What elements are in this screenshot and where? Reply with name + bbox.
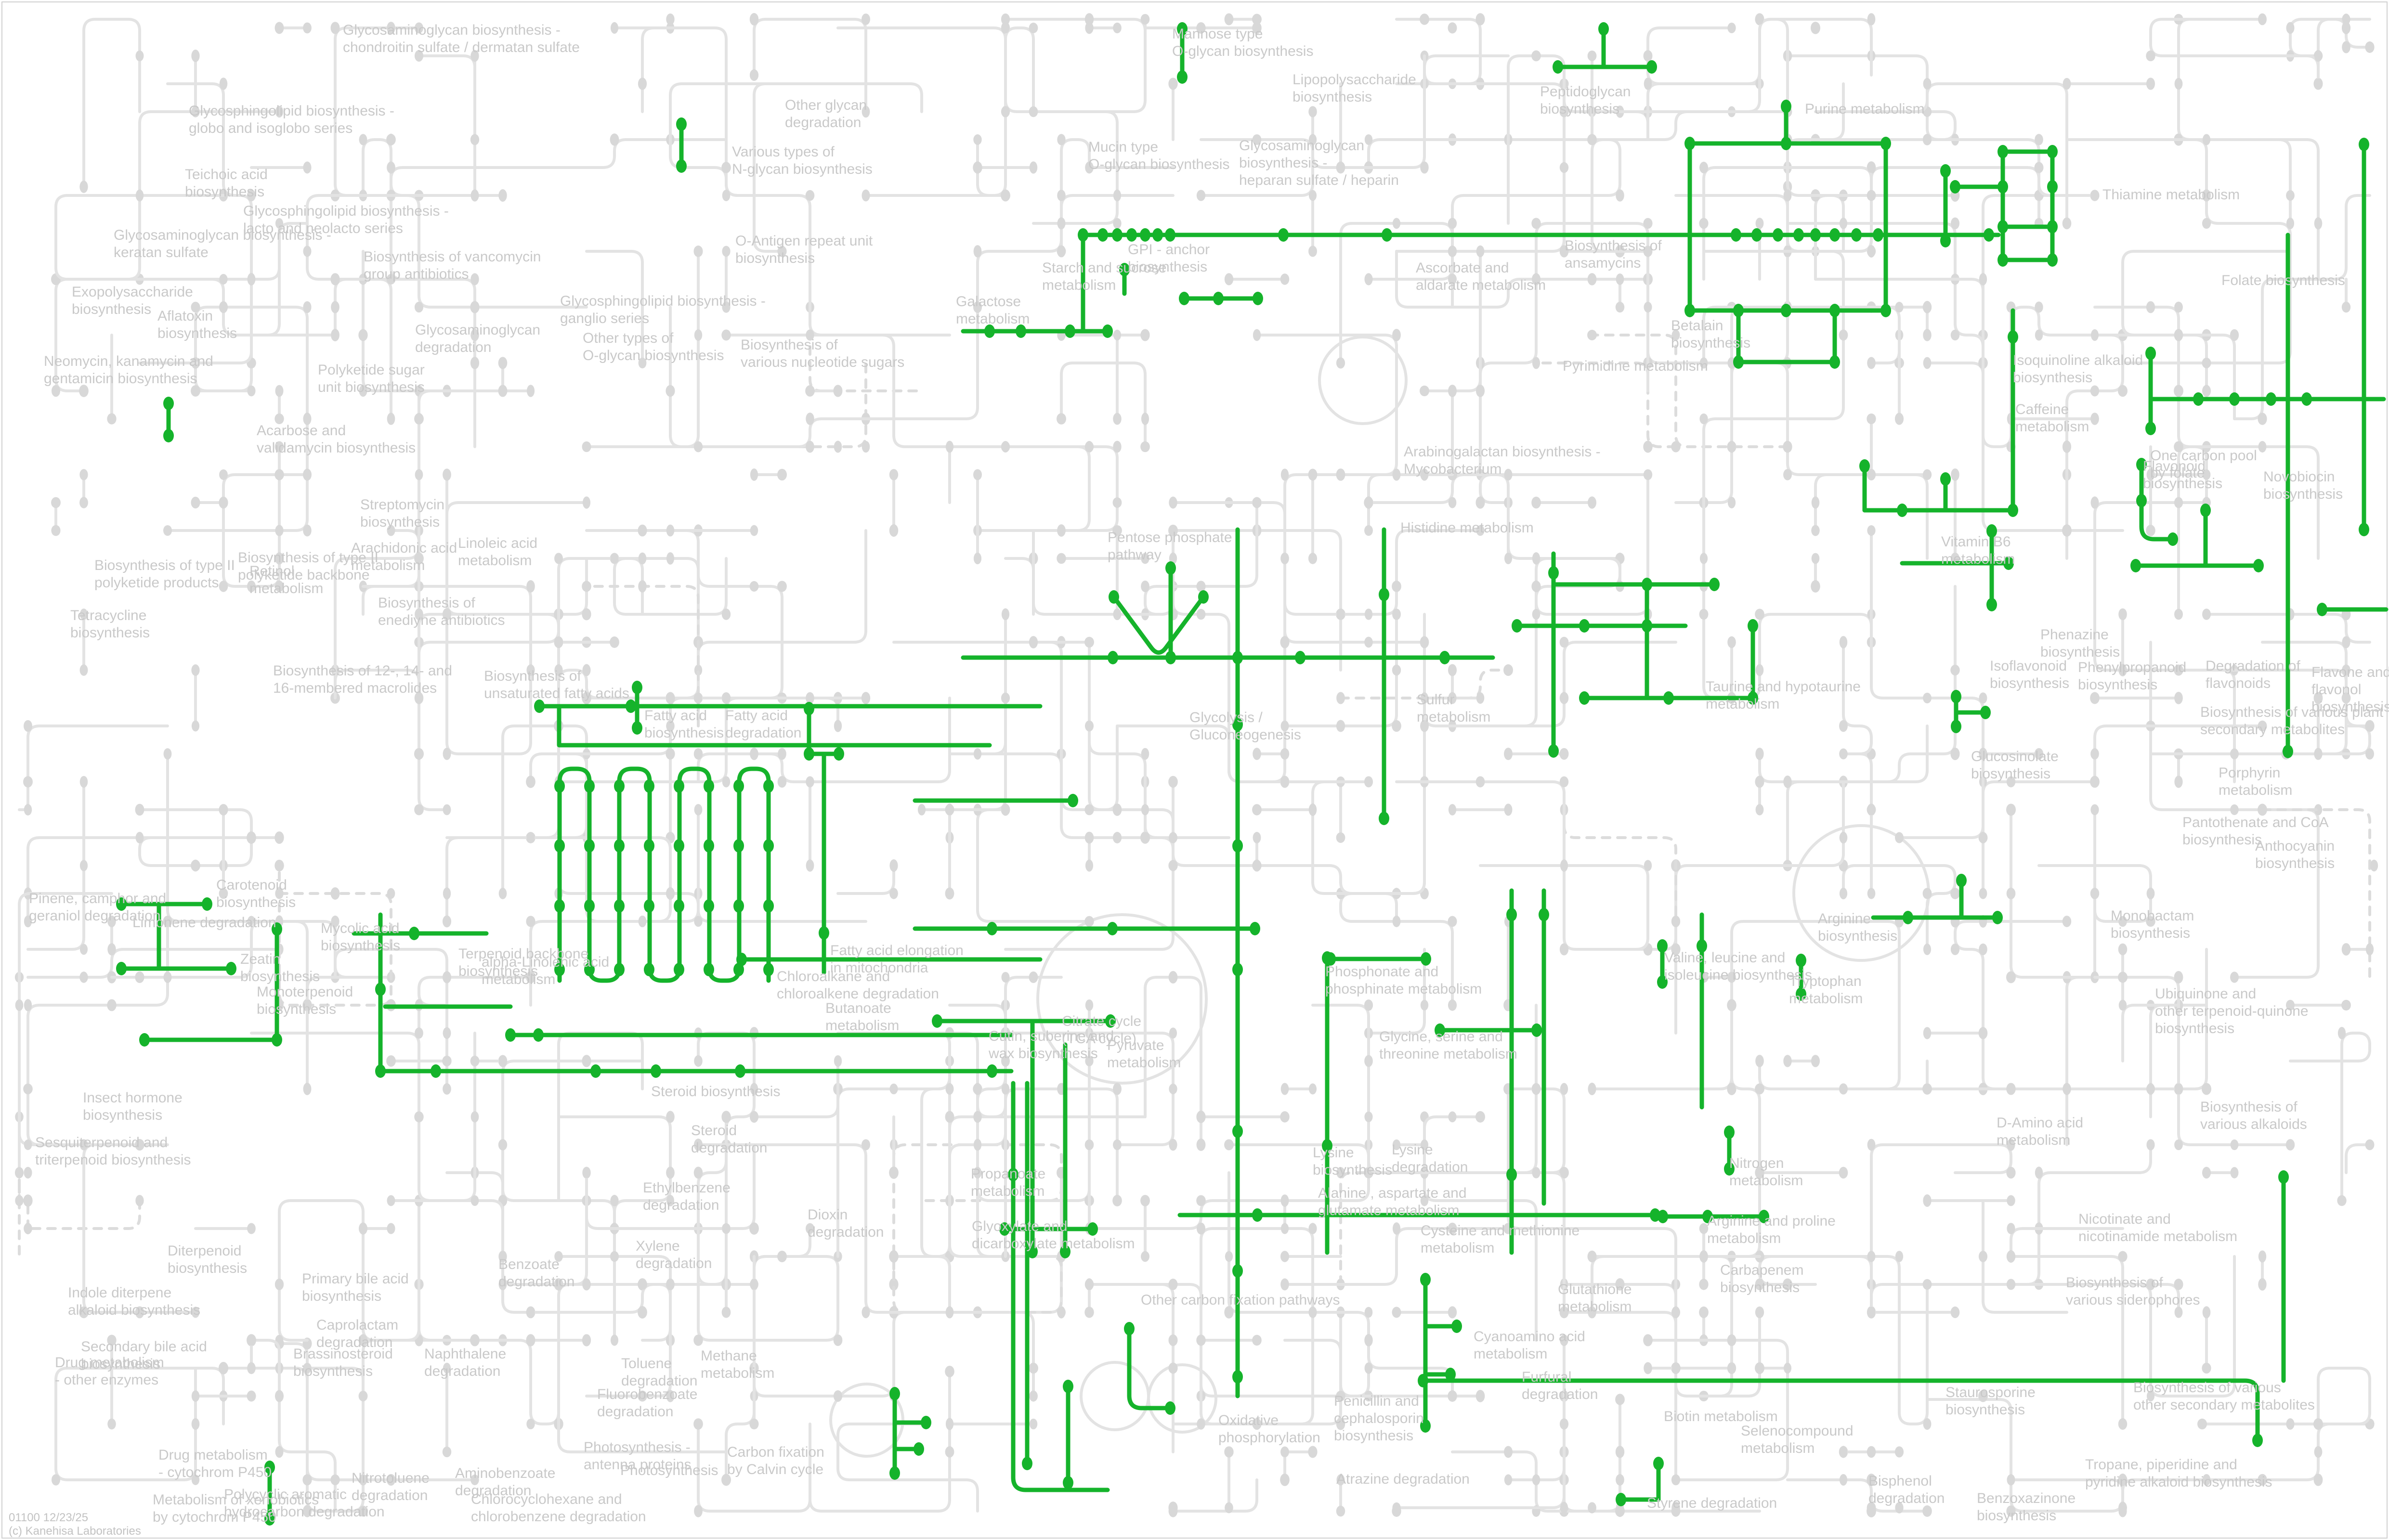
highlight-node[interactable]	[1653, 1457, 1664, 1470]
compound-node[interactable]	[219, 497, 228, 509]
compound-node[interactable]	[749, 1419, 758, 1430]
compound-node[interactable]	[1560, 1502, 1568, 1514]
compound-node[interactable]	[359, 1222, 367, 1234]
highlight-node[interactable]	[1063, 1380, 1073, 1393]
compound-node[interactable]	[1644, 860, 1652, 871]
compound-node[interactable]	[1280, 636, 1289, 648]
compound-node[interactable]	[1727, 23, 1736, 33]
compound-node[interactable]	[192, 1418, 200, 1430]
compound-node[interactable]	[722, 693, 730, 704]
compound-node[interactable]	[1922, 1505, 1932, 1517]
pathway-label[interactable]: Phenazinebiosynthesis	[2040, 627, 2120, 660]
compound-node[interactable]	[1923, 1279, 1932, 1290]
pathway-label[interactable]: Lysinedegradation	[1392, 1142, 1468, 1175]
compound-node[interactable]	[303, 469, 312, 481]
compound-node[interactable]	[1728, 497, 1736, 508]
compound-node[interactable]	[1839, 1083, 1848, 1094]
compound-node[interactable]	[1504, 803, 1513, 815]
compound-node[interactable]	[1475, 496, 1485, 508]
compound-node[interactable]	[330, 273, 339, 285]
compound-node[interactable]	[1699, 1307, 1709, 1318]
compound-node[interactable]	[1699, 609, 1709, 620]
compound-node[interactable]	[2007, 1195, 2015, 1206]
highlight-node[interactable]	[1940, 472, 1951, 486]
compound-node[interactable]	[721, 330, 731, 341]
compound-node[interactable]	[2006, 971, 2016, 984]
compound-node[interactable]	[2314, 748, 2322, 760]
compound-node[interactable]	[1923, 357, 1932, 369]
compound-node[interactable]	[1085, 859, 1093, 871]
pathway-label[interactable]: Histidine metabolism	[1400, 520, 1534, 536]
compound-node[interactable]	[191, 860, 200, 871]
compound-node[interactable]	[275, 525, 283, 536]
compound-node[interactable]	[1113, 190, 1121, 202]
compound-node[interactable]	[1085, 13, 1094, 25]
pathway-label[interactable]: Fatty acidbiosynthesis	[644, 708, 724, 741]
compound-node[interactable]	[1336, 1506, 1345, 1517]
compound-node[interactable]	[2007, 888, 2016, 899]
compound-node[interactable]	[1895, 1251, 1903, 1262]
compound-node[interactable]	[2118, 608, 2127, 621]
compound-node[interactable]	[666, 552, 674, 565]
compound-node[interactable]	[1336, 720, 1345, 732]
pathway-edge[interactable]	[838, 19, 1145, 112]
pathway-label[interactable]: Biosynthesis of type IIpolyketide produc…	[94, 557, 235, 591]
compound-node[interactable]	[499, 1055, 507, 1067]
compound-node[interactable]	[15, 999, 24, 1011]
compound-node[interactable]	[527, 1307, 535, 1318]
compound-node[interactable]	[443, 468, 451, 480]
highlight-node[interactable]	[704, 779, 714, 793]
compound-node[interactable]	[415, 302, 423, 312]
pathway-edge[interactable]	[2290, 19, 2370, 56]
compound-node[interactable]	[274, 860, 284, 871]
highlight-node[interactable]	[2283, 745, 2293, 758]
highlight-node[interactable]	[1940, 164, 1951, 178]
highlight-node[interactable]	[644, 899, 654, 913]
compound-node[interactable]	[777, 1251, 787, 1262]
compound-node[interactable]	[1531, 51, 1541, 62]
compound-node[interactable]	[2147, 888, 2155, 899]
highlight-node[interactable]	[1165, 651, 1176, 664]
compound-node[interactable]	[1560, 692, 1569, 704]
compound-node[interactable]	[1420, 13, 1429, 25]
compound-node[interactable]	[1923, 469, 1932, 480]
highlight-node[interactable]	[1616, 1493, 1626, 1506]
compound-node[interactable]	[2007, 1250, 2015, 1263]
compound-node[interactable]	[666, 13, 674, 25]
compound-node[interactable]	[2090, 776, 2100, 788]
compound-node[interactable]	[610, 133, 619, 145]
compound-node[interactable]	[2202, 1083, 2211, 1095]
compound-node[interactable]	[1169, 971, 1178, 984]
compound-node[interactable]	[2286, 1418, 2294, 1430]
highlight-node[interactable]	[202, 897, 212, 911]
compound-node[interactable]	[2338, 1027, 2346, 1039]
compound-node[interactable]	[1085, 1279, 1094, 1290]
highlight-node[interactable]	[2008, 504, 2018, 517]
compound-node[interactable]	[23, 1084, 33, 1094]
compound-node[interactable]	[1168, 1334, 1177, 1346]
pathway-label[interactable]: Acarbose andvalidamycin biosynthesis	[257, 423, 416, 456]
pathway-label[interactable]: Methanemetabolism	[701, 1348, 774, 1381]
pathway-edge[interactable]	[28, 782, 84, 949]
compound-node[interactable]	[1002, 972, 1010, 983]
compound-node[interactable]	[387, 413, 395, 425]
compound-node[interactable]	[1616, 1446, 1624, 1458]
compound-node[interactable]	[2258, 414, 2266, 424]
compound-node[interactable]	[1169, 1279, 1178, 1290]
highlight-node[interactable]	[584, 779, 595, 793]
compound-node[interactable]	[498, 189, 507, 202]
highlight-node[interactable]	[1980, 706, 1991, 719]
compound-node[interactable]	[2090, 385, 2099, 396]
pathway-edge[interactable]	[978, 447, 1117, 531]
pathway-edge[interactable]	[447, 1173, 531, 1312]
compound-node[interactable]	[136, 51, 144, 62]
compound-node[interactable]	[1448, 999, 1457, 1011]
compound-node[interactable]	[1309, 1083, 1317, 1094]
highlight-node[interactable]	[1531, 1023, 1542, 1037]
compound-node[interactable]	[526, 1419, 535, 1429]
highlight-node[interactable]	[1859, 459, 1870, 473]
compound-node[interactable]	[1113, 441, 1121, 453]
highlight-node[interactable]	[1451, 1320, 1462, 1333]
compound-node[interactable]	[805, 385, 815, 397]
compound-node[interactable]	[51, 497, 61, 508]
compound-node[interactable]	[1587, 1251, 1596, 1262]
highlight-node[interactable]	[1553, 60, 1563, 74]
pathway-label[interactable]: Cysteine and methioninemetabolism	[1421, 1223, 1580, 1256]
compound-node[interactable]	[2063, 218, 2072, 230]
highlight-node[interactable]	[1063, 1476, 1073, 1489]
compound-node[interactable]	[1141, 413, 1149, 425]
highlight-node[interactable]	[1107, 922, 1118, 935]
compound-node[interactable]	[1308, 1223, 1317, 1234]
compound-node[interactable]	[15, 1195, 23, 1206]
highlight-node[interactable]	[914, 1442, 924, 1456]
compound-node[interactable]	[554, 637, 563, 647]
compound-node[interactable]	[750, 581, 759, 592]
pathway-label[interactable]: Phosphonate andphosphinate metabolism	[1325, 964, 1482, 997]
compound-node[interactable]	[778, 748, 786, 760]
compound-node[interactable]	[1588, 1502, 1596, 1513]
compound-node[interactable]	[1057, 413, 1066, 425]
compound-node[interactable]	[2203, 134, 2210, 145]
compound-node[interactable]	[164, 748, 172, 760]
highlight-node[interactable]	[2047, 180, 2058, 194]
highlight-node[interactable]	[584, 839, 595, 853]
compound-node[interactable]	[415, 469, 423, 480]
compound-node[interactable]	[1393, 1222, 1400, 1235]
highlight-node[interactable]	[1724, 1126, 1735, 1139]
compound-node[interactable]	[1923, 78, 1932, 90]
compound-node[interactable]	[1643, 1334, 1653, 1346]
pathway-label[interactable]: Drug metabolism- cytochrom P450	[158, 1447, 272, 1480]
compound-node[interactable]	[2337, 1195, 2346, 1206]
compound-node[interactable]	[694, 329, 702, 341]
compound-node[interactable]	[275, 1446, 283, 1458]
compound-node[interactable]	[2258, 441, 2267, 453]
compound-node[interactable]	[1169, 497, 1177, 509]
compound-node[interactable]	[1755, 1055, 1764, 1067]
highlight-node[interactable]	[1781, 137, 1791, 150]
compound-node[interactable]	[1699, 1279, 1708, 1290]
highlight-node[interactable]	[1418, 1374, 1428, 1387]
compound-node[interactable]	[359, 134, 367, 145]
compound-node[interactable]	[610, 1195, 618, 1206]
compound-node[interactable]	[834, 441, 842, 453]
pathway-edge[interactable]	[2262, 810, 2370, 977]
highlight-node[interactable]	[2278, 1170, 2289, 1184]
compound-node[interactable]	[2062, 524, 2072, 537]
pathway-edge[interactable]	[1397, 782, 1648, 949]
compound-node[interactable]	[750, 525, 758, 536]
highlight-node[interactable]	[554, 899, 565, 913]
compound-node[interactable]	[1057, 1307, 1066, 1318]
compound-node[interactable]	[220, 78, 227, 90]
compound-node[interactable]	[1309, 190, 1317, 201]
compound-node[interactable]	[1449, 497, 1457, 508]
highlight-node[interactable]	[534, 699, 545, 713]
compound-node[interactable]	[1867, 190, 1876, 201]
highlight-node[interactable]	[2047, 253, 2058, 267]
compound-node[interactable]	[1364, 496, 1373, 509]
compound-node[interactable]	[806, 776, 814, 787]
compound-node[interactable]	[2314, 1474, 2323, 1486]
compound-node[interactable]	[1253, 832, 1261, 843]
compound-node[interactable]	[2118, 971, 2128, 983]
compound-node[interactable]	[1280, 1278, 1289, 1290]
highlight-node[interactable]	[2266, 392, 2276, 406]
compound-node[interactable]	[694, 693, 702, 703]
highlight-node[interactable]	[1829, 355, 1840, 369]
compound-node[interactable]	[387, 162, 395, 174]
compound-node[interactable]	[1392, 608, 1401, 620]
pathway-label[interactable]: Penicillin andcephalosporinbiosynthesis	[1334, 1393, 1424, 1444]
compound-node[interactable]	[1867, 1139, 1876, 1151]
compound-node[interactable]	[1253, 497, 1261, 508]
pathway-edge[interactable]	[1871, 531, 1983, 838]
highlight-node[interactable]	[1152, 228, 1163, 242]
compound-node[interactable]	[1923, 301, 1932, 313]
highlight-node[interactable]	[733, 779, 744, 793]
compound-node[interactable]	[1364, 525, 1373, 536]
compound-node[interactable]	[1336, 832, 1345, 843]
compound-node[interactable]	[974, 1083, 982, 1095]
compound-node[interactable]	[1029, 636, 1038, 648]
highlight-node[interactable]	[2359, 138, 2369, 151]
compound-node[interactable]	[2118, 385, 2128, 397]
compound-node[interactable]	[1867, 162, 1875, 173]
compound-node[interactable]	[275, 1279, 284, 1290]
compound-node[interactable]	[834, 1055, 842, 1067]
compound-node[interactable]	[1532, 609, 1540, 620]
pathway-label[interactable]: Insect hormonebiosynthesis	[83, 1090, 183, 1123]
compound-node[interactable]	[1532, 581, 1540, 593]
compound-node[interactable]	[1867, 525, 1875, 536]
compound-node[interactable]	[1532, 1474, 1540, 1485]
compound-node[interactable]	[1979, 692, 1987, 703]
compound-node[interactable]	[974, 1139, 981, 1151]
highlight-node[interactable]	[1950, 180, 1960, 194]
compound-node[interactable]	[611, 22, 618, 34]
compound-node[interactable]	[1392, 665, 1401, 676]
compound-node[interactable]	[582, 1055, 591, 1067]
compound-node[interactable]	[498, 1139, 507, 1150]
compound-node[interactable]	[1392, 1307, 1401, 1318]
compound-node[interactable]	[2258, 1278, 2266, 1291]
compound-node[interactable]	[1784, 189, 1791, 201]
pathway-label[interactable]: Polyketide sugarunit biosynthesis	[318, 362, 425, 395]
compound-node[interactable]	[694, 804, 703, 815]
compound-node[interactable]	[611, 1334, 618, 1346]
compound-node[interactable]	[1951, 944, 1959, 955]
compound-node[interactable]	[749, 1222, 759, 1235]
compound-node[interactable]	[1840, 1446, 1847, 1458]
pathway-label[interactable]: Ethylbenzenedegradation	[643, 1180, 731, 1213]
compound-node[interactable]	[639, 553, 647, 565]
compound-node[interactable]	[1755, 609, 1764, 620]
compound-node[interactable]	[583, 496, 590, 509]
compound-node[interactable]	[2090, 692, 2100, 704]
pathway-edge[interactable]	[2011, 810, 2095, 977]
pathway-edge[interactable]	[1871, 335, 1899, 363]
highlight-node[interactable]	[889, 1387, 900, 1400]
pathway-label[interactable]: Lipopolysaccharidebiosynthesis	[1292, 72, 1416, 105]
compound-node[interactable]	[1448, 664, 1457, 676]
compound-node[interactable]	[946, 441, 953, 453]
compound-node[interactable]	[1923, 1027, 1931, 1039]
pathway-edge[interactable]	[838, 1424, 978, 1511]
pathway-label[interactable]: Aflatoxinbiosynthesis	[157, 308, 237, 341]
compound-node[interactable]	[498, 357, 508, 369]
compound-node[interactable]	[1084, 804, 1094, 815]
compound-node[interactable]	[1336, 357, 1345, 368]
pathway-label[interactable]: Bisphenoldegradation	[1868, 1473, 1945, 1506]
compound-node[interactable]	[834, 1390, 842, 1402]
compound-node[interactable]	[2314, 1446, 2323, 1458]
compound-node[interactable]	[1140, 1195, 1150, 1206]
compound-node[interactable]	[554, 553, 563, 564]
compound-node[interactable]	[1281, 1194, 1289, 1207]
compound-node[interactable]	[471, 1111, 479, 1122]
compound-node[interactable]	[331, 301, 339, 313]
pathway-label[interactable]: Novobiocinbiosynthesis	[2263, 469, 2343, 502]
pathway-label[interactable]: Other glycandegradation	[785, 97, 867, 130]
highlight-node[interactable]	[2145, 347, 2156, 360]
compound-node[interactable]	[1560, 162, 1568, 173]
compound-node[interactable]	[1253, 329, 1261, 341]
compound-node[interactable]	[135, 804, 144, 816]
highlight-node[interactable]	[614, 899, 625, 913]
compound-node[interactable]	[2090, 413, 2099, 425]
pathway-edge[interactable]	[1564, 1256, 1732, 1396]
pathway-edge[interactable]	[1871, 1145, 2011, 1312]
compound-node[interactable]	[1001, 190, 1010, 201]
highlight-node[interactable]	[1253, 292, 1263, 305]
compound-node[interactable]	[583, 1167, 591, 1178]
compound-node[interactable]	[2202, 218, 2211, 229]
pathway-label[interactable]: Glycosphingolipid biosynthesis -globo an…	[189, 103, 394, 136]
compound-node[interactable]	[1895, 413, 1904, 425]
highlight-node[interactable]	[1642, 619, 1652, 633]
compound-node[interactable]	[2007, 1474, 2015, 1485]
compound-node[interactable]	[1336, 609, 1345, 620]
compound-node[interactable]	[1420, 161, 1428, 173]
highlight-node[interactable]	[987, 922, 997, 935]
compound-node[interactable]	[1671, 916, 1680, 927]
compound-node[interactable]	[1113, 832, 1122, 843]
compound-node[interactable]	[1001, 106, 1010, 117]
highlight-node[interactable]	[644, 779, 654, 793]
compound-node[interactable]	[1197, 190, 1205, 201]
compound-node[interactable]	[1476, 385, 1485, 397]
highlight-node[interactable]	[2359, 523, 2369, 536]
highlight-node[interactable]	[1709, 578, 1720, 591]
compound-node[interactable]	[24, 804, 32, 815]
highlight-node[interactable]	[409, 927, 419, 940]
highlight-node[interactable]	[1829, 228, 1840, 242]
highlight-node[interactable]	[733, 899, 744, 913]
pathway-edge[interactable]	[838, 866, 894, 893]
highlight-node[interactable]	[1579, 691, 1590, 705]
compound-node[interactable]	[471, 1195, 479, 1206]
compound-node[interactable]	[1923, 1418, 1932, 1430]
compound-node[interactable]	[1113, 497, 1122, 508]
compound-node[interactable]	[135, 1195, 144, 1206]
compound-node[interactable]	[1979, 888, 1987, 899]
compound-node[interactable]	[1504, 469, 1513, 480]
compound-node[interactable]	[1476, 1390, 1485, 1402]
highlight-node[interactable]	[1250, 922, 1260, 935]
compound-node[interactable]	[1029, 1390, 1038, 1401]
compound-node[interactable]	[1587, 330, 1597, 340]
compound-node[interactable]	[1615, 1505, 1625, 1517]
highlight-node[interactable]	[1733, 355, 1744, 369]
highlight-node[interactable]	[676, 159, 687, 173]
highlight-node[interactable]	[1940, 234, 1951, 247]
compound-node[interactable]	[1840, 888, 1847, 899]
compound-node[interactable]	[1308, 246, 1317, 257]
compound-node[interactable]	[136, 190, 144, 202]
highlight-node[interactable]	[1793, 228, 1804, 242]
pathway-edge[interactable]	[950, 614, 1005, 754]
pathway-label[interactable]: Dioxindegradation	[808, 1207, 884, 1240]
compound-node[interactable]	[1002, 23, 1010, 34]
highlight-edge[interactable]	[560, 769, 769, 981]
pathway-edge[interactable]	[1648, 28, 1760, 84]
highlight-node[interactable]	[1751, 228, 1762, 242]
compound-node[interactable]	[1113, 1139, 1122, 1150]
highlight-node[interactable]	[674, 779, 684, 793]
pathway-label[interactable]: GPI - anchorbiosynthesis	[1128, 242, 1210, 275]
compound-node[interactable]	[80, 860, 88, 871]
compound-node[interactable]	[1923, 944, 1931, 955]
highlight-node[interactable]	[1112, 228, 1123, 242]
compound-node[interactable]	[2231, 1167, 2239, 1178]
compound-node[interactable]	[722, 776, 730, 787]
pathway-label[interactable]: Folate biosynthesis	[2221, 272, 2345, 288]
compound-node[interactable]	[136, 832, 144, 843]
compound-node[interactable]	[862, 13, 870, 25]
compound-node[interactable]	[638, 1279, 647, 1290]
compound-node[interactable]	[443, 971, 451, 983]
compound-node[interactable]	[79, 469, 88, 480]
compound-node[interactable]	[2035, 1166, 2043, 1178]
compound-node[interactable]	[1560, 859, 1568, 872]
compound-node[interactable]	[1616, 1474, 1624, 1486]
